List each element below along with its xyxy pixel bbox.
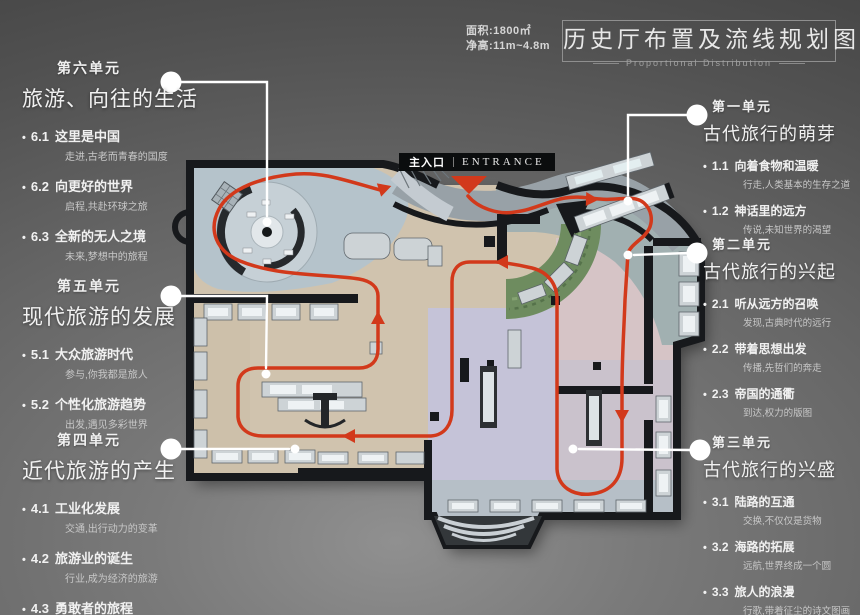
area-label: 面积:1800㎡ bbox=[466, 24, 550, 39]
unit-4-title: 近代旅游的产生 bbox=[22, 455, 176, 485]
unit-1-block: 第一单元 古代旅行的萌芽 •1.1向着食物和温暖 行走,人类基本的生存之道 •1… bbox=[703, 96, 860, 236]
unit-2-block: 第二单元 古代旅行的兴起 •2.1听从远方的召唤 发现,古典时代的远行 •2.2… bbox=[703, 234, 860, 419]
unit-6-item: •6.3全新的无人之境 未来,梦想中的旅程 bbox=[22, 226, 198, 263]
entrance-cn: 主入口 bbox=[409, 154, 445, 170]
unit-2-item: •2.2带着思想出发 传播,先哲们的奔走 bbox=[703, 340, 860, 374]
unit-5-header: 第五单元 bbox=[57, 276, 176, 296]
leader-unit3 bbox=[579, 449, 690, 450]
unit-2-title: 古代旅行的兴起 bbox=[703, 258, 860, 284]
unit-3-item: •3.1陆路的互通 交换,不仅仅是货物 bbox=[703, 493, 860, 527]
unit-6-item: •6.2向更好的世界 启程,共赴环球之旅 bbox=[22, 176, 198, 213]
unit-4-item: •4.2旅游业的诞生 行业,成为经济的旅游 bbox=[22, 548, 176, 585]
unit-5-item: •5.1大众旅游时代 参与,你我都是旅人 bbox=[22, 344, 176, 381]
unit-6-title: 旅游、向往的生活 bbox=[22, 83, 198, 113]
unit-1-item: •1.2神话里的远方 传说,未知世界的渴望 bbox=[703, 202, 860, 236]
unit-1-title: 古代旅行的萌芽 bbox=[703, 120, 860, 146]
page-subtitle: Proportional Distribution bbox=[563, 58, 835, 68]
unit-4-header: 第四单元 bbox=[57, 430, 176, 450]
unit-3-block: 第三单元 古代旅行的兴盛 •3.1陆路的互通 交换,不仅仅是货物 •3.2海路的… bbox=[703, 432, 860, 615]
unit-4-item: •4.1工业化发展 交通,出行动力的变革 bbox=[22, 498, 176, 535]
unit-5-item: •5.2个性化旅游趋势 出发,遇见多彩世界 bbox=[22, 394, 176, 431]
unit-2-item: •2.1听从远方的召唤 发现,古典时代的远行 bbox=[703, 295, 860, 329]
unit-4-item: •4.3勇敢者的旅程 开辟,重新发现世界 bbox=[22, 598, 176, 615]
unit-3-title: 古代旅行的兴盛 bbox=[703, 456, 860, 482]
unit-6-block: 第六单元 旅游、向往的生活 •6.1这里是中国 走进,古老而青春的国度 •6.2… bbox=[22, 58, 198, 263]
height-label: 净高:11m~4.8m bbox=[466, 39, 550, 54]
entrance-label: 主入口 ENTRANCE bbox=[399, 153, 555, 171]
unit-5-title: 现代旅游的发展 bbox=[22, 301, 176, 331]
unit-6-header: 第六单元 bbox=[57, 58, 198, 78]
entrance-en: ENTRANCE bbox=[462, 156, 545, 168]
plan-specs: 面积:1800㎡ 净高:11m~4.8m bbox=[466, 24, 550, 54]
entrance-divider bbox=[453, 157, 454, 167]
unit-5-block: 第五单元 现代旅游的发展 •5.1大众旅游时代 参与,你我都是旅人 •5.2个性… bbox=[22, 276, 176, 431]
unit-2-item: •2.3帝国的通衢 到达,权力的版图 bbox=[703, 385, 860, 419]
page-title: 历史厅布置及流线规划图 bbox=[563, 21, 835, 59]
unit-2-header: 第二单元 bbox=[712, 234, 860, 253]
unit-4-block: 第四单元 近代旅游的产生 •4.1工业化发展 交通,出行动力的变革 •4.2旅游… bbox=[22, 430, 176, 615]
unit-3-header: 第三单元 bbox=[712, 432, 860, 451]
unit-3-item: •3.2海路的拓展 远航,世界终成一个圆 bbox=[703, 538, 860, 572]
unit-3-item: •3.3旅人的浪漫 行歌,带着征尘的诗文图画 bbox=[703, 583, 860, 615]
unit-1-header: 第一单元 bbox=[712, 96, 860, 115]
layout-poster: 面积:1800㎡ 净高:11m~4.8m 历史厅布置及流线规划图 Proport… bbox=[0, 0, 860, 615]
title-box: 历史厅布置及流线规划图 Proportional Distribution bbox=[562, 20, 836, 62]
unit-6-item: •6.1这里是中国 走进,古老而青春的国度 bbox=[22, 126, 198, 163]
unit-1-item: •1.1向着食物和温暖 行走,人类基本的生存之道 bbox=[703, 157, 860, 191]
